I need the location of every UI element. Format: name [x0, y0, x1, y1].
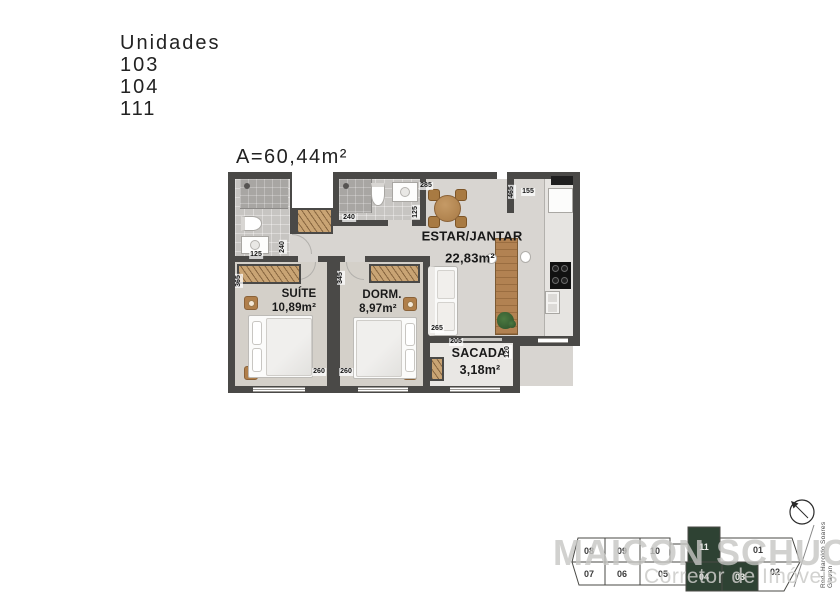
dimension-label: 465 — [508, 185, 516, 199]
total-area-label: A=60,44m² — [236, 146, 348, 169]
burner-icon — [552, 277, 559, 284]
dimension-label: 125 — [249, 251, 263, 259]
window — [538, 338, 568, 343]
sink-basin — [250, 240, 260, 250]
entry-wardrobe — [296, 208, 333, 234]
pillow — [405, 323, 415, 346]
plant — [508, 320, 516, 328]
dimension-label: 125 — [412, 205, 420, 219]
duvet — [266, 318, 312, 376]
wall — [365, 256, 430, 262]
wall-opening — [497, 172, 507, 179]
units-title: Unidades — [120, 32, 221, 54]
dimension-label: 260 — [339, 368, 353, 376]
dorm-wardrobe — [369, 264, 420, 283]
burner-icon — [561, 277, 568, 284]
dimension-label: 240 — [342, 214, 356, 222]
wall — [420, 172, 426, 226]
room-area-living: 22,83m² — [445, 251, 495, 266]
watermark-tagline: Corretor de Imóveis — [644, 566, 838, 587]
room-label-dorm: DORM. — [362, 289, 401, 301]
window-line — [450, 389, 500, 390]
dimension-label: 120 — [504, 345, 512, 359]
shower-head-icon — [244, 183, 250, 189]
wall — [228, 256, 298, 262]
dimension-label: 265 — [430, 325, 444, 333]
dimension-label: 240 — [279, 240, 287, 254]
kitchen-cabinet — [551, 176, 573, 185]
balcony-planter — [430, 357, 444, 381]
entrance-opening — [292, 170, 333, 208]
sink-bowl — [548, 294, 557, 302]
burner-icon — [561, 265, 568, 272]
fridge — [548, 188, 573, 213]
room-label-balcony: SACADA — [452, 346, 507, 360]
sofa-cushion — [437, 270, 455, 299]
dining-table — [434, 195, 461, 222]
wall — [573, 172, 580, 346]
suite-wardrobe — [237, 264, 301, 284]
unit-number: 104 — [120, 76, 221, 98]
room-label-suite: SUÍTE — [282, 288, 317, 300]
window-line — [358, 389, 408, 390]
cooktop — [550, 262, 571, 289]
pillow — [252, 348, 262, 372]
dorm-bed — [353, 317, 417, 379]
wall — [333, 172, 339, 220]
lamp-icon — [248, 300, 255, 307]
nightstand — [403, 297, 417, 311]
wall — [228, 172, 292, 179]
pillow — [252, 321, 262, 345]
shower-head-icon — [343, 183, 349, 189]
sink-basin — [400, 187, 410, 197]
sink-bowl — [548, 304, 557, 312]
dimension-label: 260 — [312, 368, 326, 376]
flyer-page: { "header": { "units_label": "Unidades",… — [0, 0, 840, 600]
room-area-suite: 10,89m² — [272, 302, 316, 314]
wall — [412, 220, 426, 226]
unit-number: 111 — [120, 98, 221, 120]
room-label-living: ESTAR/JANTAR — [422, 229, 523, 244]
dimension-label: 365 — [235, 274, 243, 288]
wall — [513, 346, 520, 393]
shower-glass — [240, 208, 288, 209]
duvet — [356, 320, 402, 377]
pillow — [405, 349, 415, 372]
dimension-label: 285 — [419, 182, 433, 190]
nightstand — [244, 296, 258, 310]
room-area-balcony: 3,18m² — [460, 363, 501, 377]
burner-icon — [552, 265, 559, 272]
suite-bed — [248, 315, 313, 378]
unit-number: 103 — [120, 54, 221, 76]
stool — [520, 251, 531, 263]
toilet — [371, 183, 385, 206]
dimension-label: 345 — [337, 271, 345, 285]
toilet — [241, 216, 262, 231]
lamp-icon — [407, 301, 414, 308]
wall — [333, 172, 497, 179]
units-header: Unidades 103 104 111 — [120, 32, 221, 120]
room-area-dorm: 8,97m² — [359, 303, 397, 315]
window-line — [253, 389, 305, 390]
dimension-label: 155 — [521, 188, 535, 196]
floor-plan: ESTAR/JANTAR 22,83m² SUÍTE 10,89m² DORM.… — [228, 170, 580, 395]
wall — [228, 172, 235, 393]
dimension-label: 205 — [449, 338, 463, 346]
